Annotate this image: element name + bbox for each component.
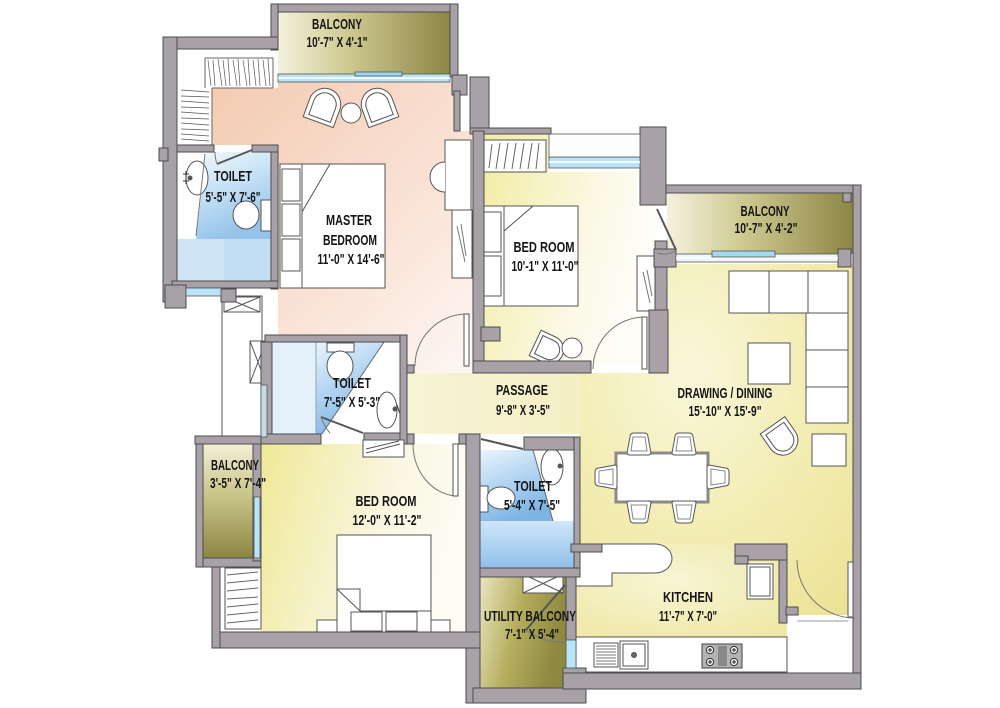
svg-text:BALCONY: BALCONY — [312, 16, 362, 33]
svg-text:MASTER: MASTER — [326, 212, 372, 229]
svg-text:7'-1" X 5'-4": 7'-1" X 5'-4" — [505, 626, 559, 643]
svg-text:BEDROOM: BEDROOM — [323, 232, 377, 249]
svg-text:BED ROOM: BED ROOM — [514, 239, 575, 256]
svg-text:11'-0" X 14'-6": 11'-0" X 14'-6" — [318, 251, 385, 268]
svg-text:11'-7" X 7'-0": 11'-7" X 7'-0" — [659, 608, 717, 625]
svg-text:TOILET: TOILET — [514, 478, 552, 495]
svg-text:10'-7" X 4'-1": 10'-7" X 4'-1" — [307, 34, 368, 51]
svg-text:5'-5" X 7'-6": 5'-5" X 7'-6" — [206, 189, 261, 206]
svg-text:TOILET: TOILET — [333, 375, 371, 392]
svg-text:3'-5" X 7'-4": 3'-5" X 7'-4" — [210, 475, 266, 492]
svg-text:7'-5" X 5'-3": 7'-5" X 5'-3" — [324, 394, 380, 411]
svg-text:TOILET: TOILET — [214, 168, 252, 185]
svg-text:9'-8" X 3'-5": 9'-8" X 3'-5" — [496, 402, 550, 419]
svg-text:BALCONY: BALCONY — [211, 457, 259, 474]
svg-text:BED ROOM: BED ROOM — [356, 493, 417, 510]
svg-text:DRAWING / DINING: DRAWING / DINING — [678, 385, 773, 402]
svg-text:5'-4" X 7'-5": 5'-4" X 7'-5" — [504, 497, 560, 514]
svg-text:BALCONY: BALCONY — [741, 203, 790, 220]
svg-text:UTILITY BALCONY: UTILITY BALCONY — [484, 608, 576, 625]
svg-text:KITCHEN: KITCHEN — [663, 589, 713, 606]
svg-text:10'-1" X 11'-0": 10'-1" X 11'-0" — [512, 258, 579, 275]
svg-text:10'-7" X 4'-2": 10'-7" X 4'-2" — [735, 220, 798, 237]
svg-text:15'-10" X 15'-9": 15'-10" X 15'-9" — [689, 403, 762, 420]
svg-text:PASSAGE: PASSAGE — [496, 382, 548, 399]
svg-text:12'-0" X 11'-2": 12'-0" X 11'-2" — [353, 512, 422, 529]
